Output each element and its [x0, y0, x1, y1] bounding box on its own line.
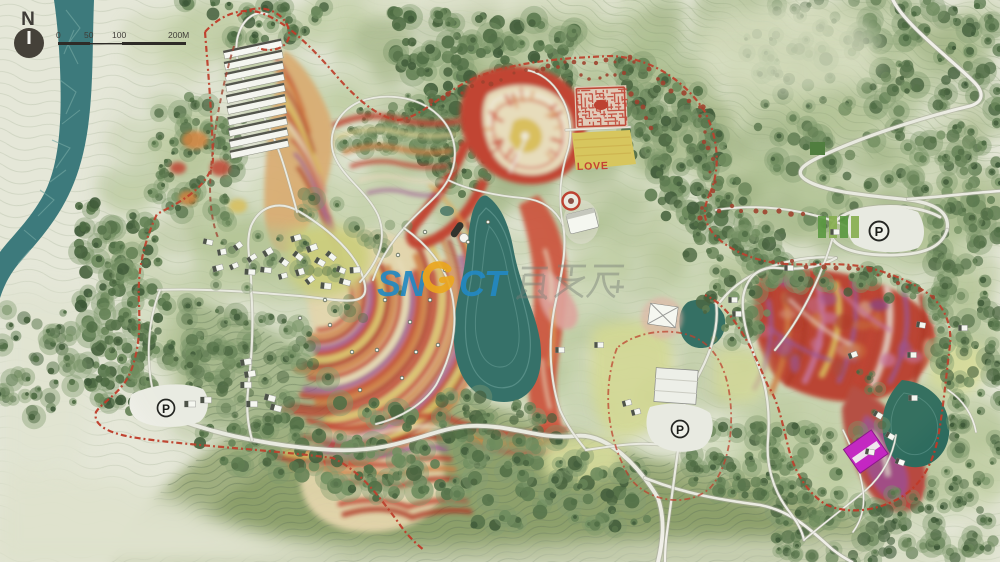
svg-text:N: N: [21, 9, 35, 30]
svg-text:200M: 200M: [168, 30, 189, 40]
svg-text:50: 50: [84, 30, 94, 40]
svg-text:100: 100: [112, 30, 126, 40]
svg-text:0: 0: [56, 30, 61, 40]
